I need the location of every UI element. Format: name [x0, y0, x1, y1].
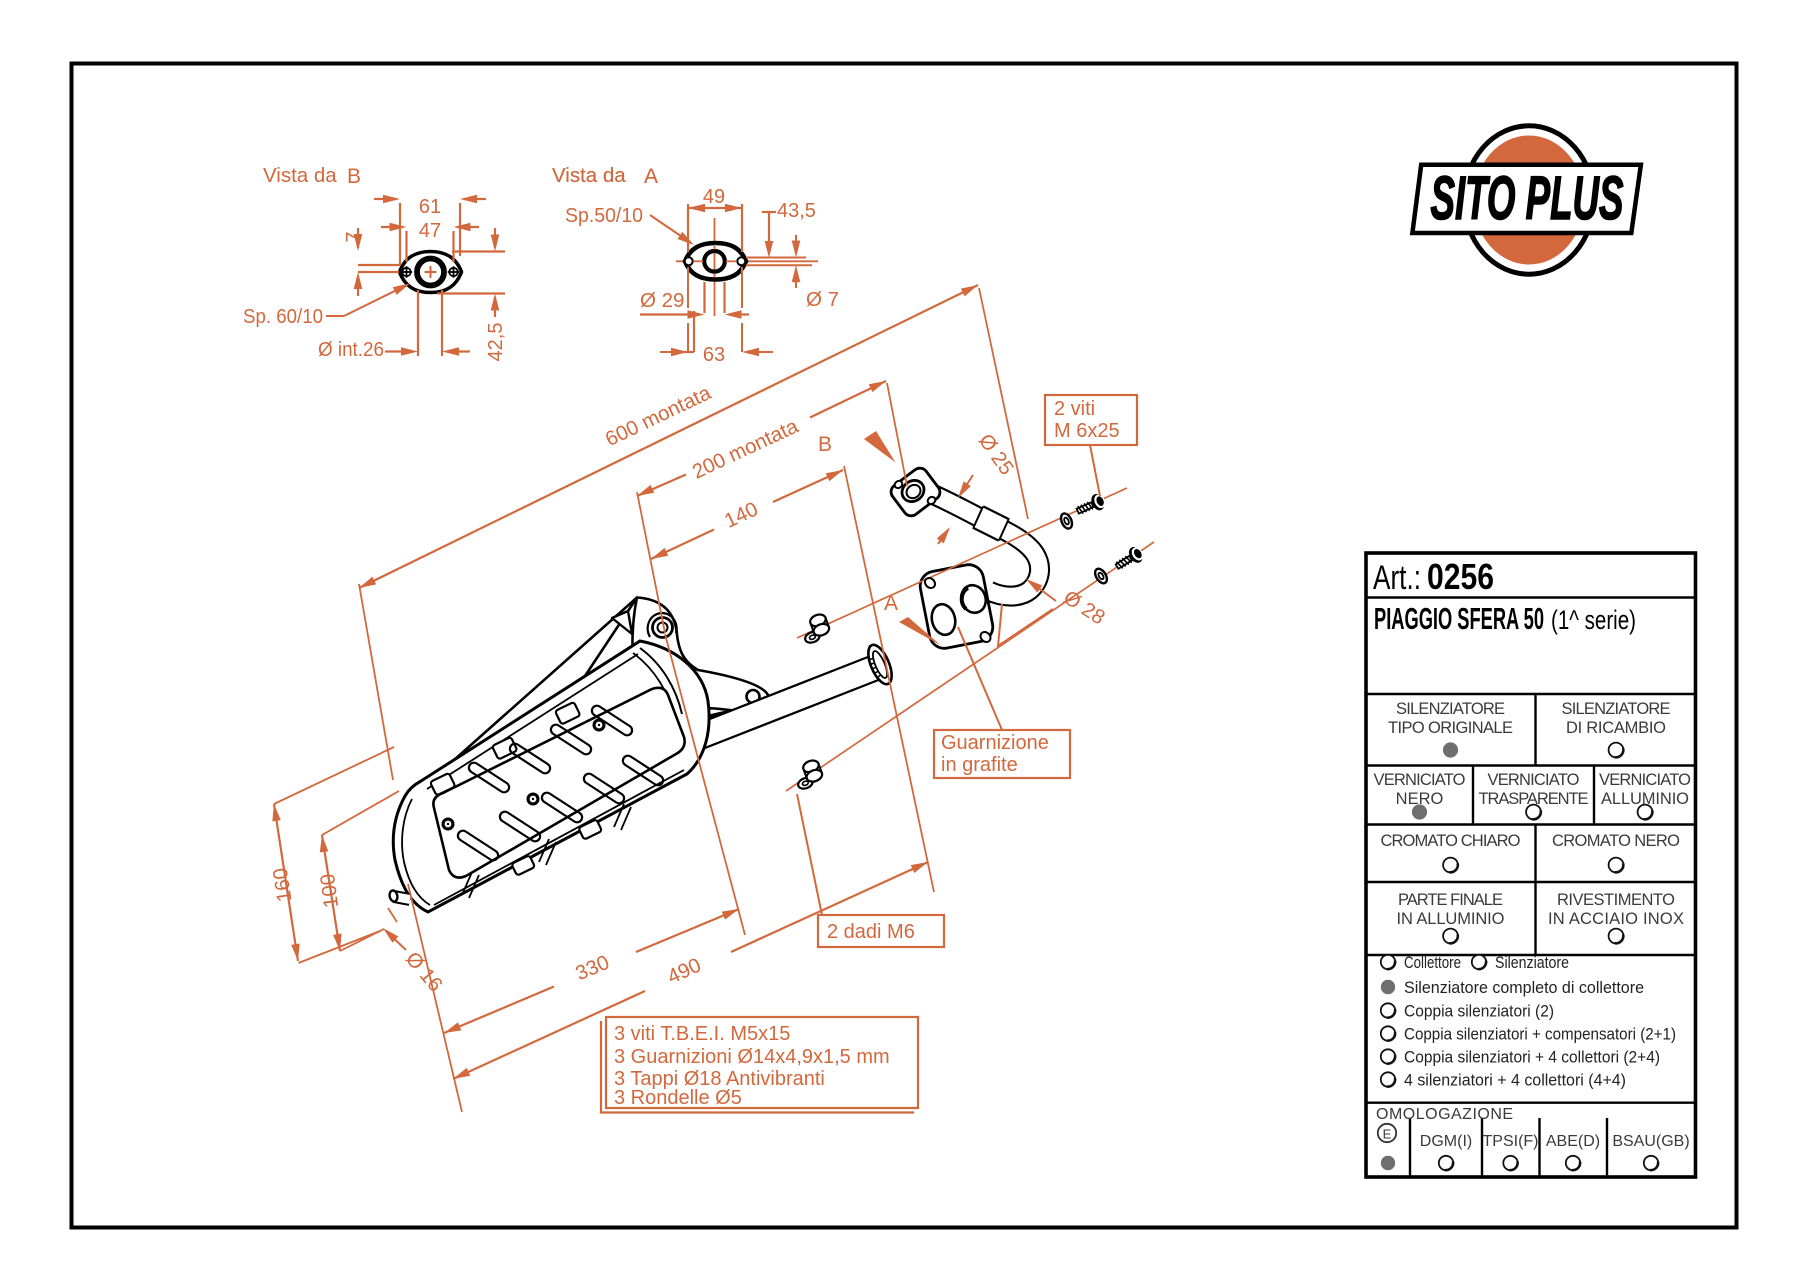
svg-text:M 6x25: M 6x25 — [1054, 420, 1120, 442]
svg-text:PARTE FINALE: PARTE FINALE — [1398, 891, 1503, 909]
svg-text:PIAGGIO SFERA 50: PIAGGIO SFERA 50 — [1374, 601, 1544, 636]
svg-text:BSAU(GB): BSAU(GB) — [1612, 1133, 1689, 1150]
svg-text:Coppia silenziatori + 4 collet: Coppia silenziatori + 4 collettori (2+4) — [1404, 1048, 1660, 1067]
svg-text:Vista da: Vista da — [552, 164, 626, 187]
svg-text:DGM(I): DGM(I) — [1420, 1133, 1472, 1150]
svg-text:CROMATO NERO: CROMATO NERO — [1552, 832, 1680, 850]
svg-text:61: 61 — [419, 196, 441, 218]
svg-text:3 Rondelle Ø5: 3 Rondelle Ø5 — [614, 1087, 742, 1109]
svg-text:IN ACCIAIO INOX: IN ACCIAIO INOX — [1548, 910, 1684, 928]
svg-text:Ø 29: Ø 29 — [640, 289, 684, 312]
svg-text:DI RICAMBIO: DI RICAMBIO — [1566, 719, 1666, 737]
svg-text:Vista da: Vista da — [263, 164, 337, 187]
svg-text:7: 7 — [343, 231, 365, 242]
svg-text:TIPO ORIGINALE: TIPO ORIGINALE — [1388, 719, 1513, 737]
svg-text:Silenziatore completo di colle: Silenziatore completo di collettore — [1404, 978, 1644, 997]
svg-text:OMOLOGAZIONE: OMOLOGAZIONE — [1376, 1106, 1514, 1123]
svg-text:E: E — [1383, 1127, 1392, 1142]
svg-text:0256: 0256 — [1427, 556, 1494, 597]
svg-text:Coppia silenziatori + compensa: Coppia silenziatori + compensatori (2+1) — [1404, 1025, 1676, 1044]
svg-text:Coppia silenziatori (2): Coppia silenziatori (2) — [1404, 1002, 1554, 1021]
svg-text:Guarnizione: Guarnizione — [941, 732, 1049, 754]
svg-text:A: A — [884, 592, 898, 615]
svg-text:SILENZIATORE: SILENZIATORE — [1396, 700, 1505, 718]
svg-text:Sp. 60/10: Sp. 60/10 — [243, 305, 323, 328]
svg-text:49: 49 — [703, 186, 725, 208]
svg-text:in grafite: in grafite — [941, 754, 1018, 776]
svg-text:Collettore: Collettore — [1404, 953, 1461, 972]
svg-text:3 viti T.B.E.I. M5x15: 3 viti T.B.E.I. M5x15 — [614, 1023, 790, 1045]
svg-text:RIVESTIMENTO: RIVESTIMENTO — [1557, 891, 1675, 909]
svg-text:VERNICIATO: VERNICIATO — [1488, 771, 1580, 789]
svg-text:43,5: 43,5 — [777, 200, 816, 222]
svg-text:2 viti: 2 viti — [1054, 398, 1095, 420]
svg-text:Ø 7: Ø 7 — [806, 288, 839, 311]
svg-text:IN ALLUMINIO: IN ALLUMINIO — [1397, 910, 1505, 928]
svg-text:3 Guarnizioni Ø14x4,9x1,5 mm: 3 Guarnizioni Ø14x4,9x1,5 mm — [614, 1046, 890, 1068]
svg-text:Ø int.26: Ø int.26 — [318, 338, 384, 361]
svg-text:B: B — [347, 165, 361, 188]
svg-text:Sp.50/10: Sp.50/10 — [565, 204, 643, 227]
svg-text:VERNICIATO: VERNICIATO — [1374, 771, 1466, 789]
svg-text:42,5: 42,5 — [485, 323, 507, 362]
svg-text:Silenziatore: Silenziatore — [1495, 953, 1569, 972]
svg-text:100: 100 — [316, 872, 343, 909]
svg-text:63: 63 — [703, 344, 725, 366]
svg-text:(1^ serie): (1^ serie) — [1551, 605, 1636, 635]
svg-text:VERNICIATO: VERNICIATO — [1599, 771, 1691, 789]
svg-text:SITO PLUS: SITO PLUS — [1431, 164, 1624, 232]
svg-text:B: B — [818, 433, 832, 456]
svg-text:A: A — [644, 165, 658, 188]
svg-text:4 silenziatori + 4 collettori: 4 silenziatori + 4 collettori (4+4) — [1404, 1071, 1626, 1090]
svg-text:SILENZIATORE: SILENZIATORE — [1562, 700, 1671, 718]
svg-text:Art.:: Art.: — [1373, 559, 1421, 597]
svg-text:CROMATO CHIARO: CROMATO CHIARO — [1381, 832, 1521, 850]
svg-text:ABE(D): ABE(D) — [1546, 1133, 1600, 1150]
svg-text:2 dadi M6: 2 dadi M6 — [827, 921, 915, 943]
svg-text:47: 47 — [419, 220, 441, 242]
svg-text:TPSI(F): TPSI(F) — [1483, 1133, 1539, 1150]
